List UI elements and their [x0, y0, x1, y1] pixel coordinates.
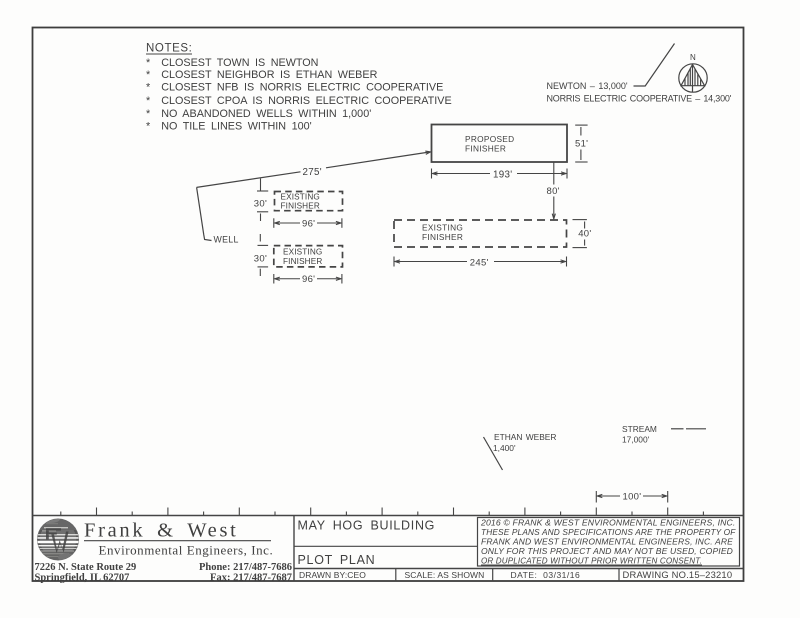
svg-text:FINISHER: FINISHER [281, 202, 320, 211]
svg-text:* CLOSEST NEIGHBOR IS ETHAN W: * CLOSEST NEIGHBOR IS ETHAN WEBER [146, 69, 378, 81]
svg-text:PLOT PLAN: PLOT PLAN [298, 553, 376, 567]
svg-text:SCALE: AS SHOWN: SCALE: AS SHOWN [405, 570, 485, 580]
svg-text:MAY HOG BUILDING: MAY HOG BUILDING [298, 519, 436, 533]
svg-text:THESE PLANS AND SPECIFICATIONS: THESE PLANS AND SPECIFICATIONS ARE THE P… [481, 528, 736, 537]
svg-text:100': 100' [623, 491, 642, 502]
svg-text:Environmental Engineers, Inc.: Environmental Engineers, Inc. [99, 542, 274, 557]
svg-text:275': 275' [303, 167, 322, 178]
svg-text:Springfield, IL 62707: Springfield, IL 62707 [35, 573, 130, 584]
svg-text:FINISHER: FINISHER [283, 257, 322, 266]
svg-text:NOTES:: NOTES: [146, 43, 192, 55]
svg-text:* CLOSEST CPOA IS NORRIS ELEC: * CLOSEST CPOA IS NORRIS ELECTRIC COOPER… [146, 95, 452, 107]
svg-text:STREAM: STREAM [622, 424, 657, 434]
svg-text:FRANK AND WEST ENVIRONMENTAL E: FRANK AND WEST ENVIRONMENTAL ENGINEERS, … [481, 538, 733, 547]
svg-text:NORRIS ELECTRIC COOPERATIVE –: NORRIS ELECTRIC COOPERATIVE – 14,300' [547, 94, 732, 104]
svg-text:* CLOSEST TOWN IS NEWTON: * CLOSEST TOWN IS NEWTON [146, 57, 318, 69]
svg-text:* NO TILE LINES WITHIN 100': * NO TILE LINES WITHIN 100' [146, 121, 312, 133]
svg-text:2016 © FRANK & WEST ENVIRONMEN: 2016 © FRANK & WEST ENVIRONMENTAL ENGINE… [480, 519, 736, 528]
svg-text:80': 80' [547, 186, 560, 197]
svg-text:96': 96' [302, 218, 315, 229]
svg-text:WELL: WELL [214, 235, 239, 245]
svg-text:51': 51' [575, 139, 588, 150]
svg-text:17,000': 17,000' [622, 435, 650, 445]
svg-text:Fax: 217/487-7687: Fax: 217/487-7687 [210, 573, 292, 584]
svg-text:FINISHER: FINISHER [422, 232, 463, 242]
svg-text:40': 40' [578, 229, 591, 240]
svg-text:DATE: 03/31/16: DATE: 03/31/16 [511, 570, 581, 580]
svg-text:ONLY FOR THIS PROJECT AND MAY: ONLY FOR THIS PROJECT AND MAY NOT BE USE… [481, 547, 733, 556]
svg-text:* CLOSEST NFB IS NORRIS ELECT: * CLOSEST NFB IS NORRIS ELECTRIC COOPERA… [146, 82, 443, 94]
svg-text:Frank & West: Frank & West [84, 520, 239, 542]
svg-text:OR DUPLICATED WITHOUT PRIOR WR: OR DUPLICATED WITHOUT PRIOR WRITTEN CONS… [481, 557, 702, 566]
svg-text:193': 193' [493, 170, 512, 181]
svg-text:* NO ABANDONED WELLS WITHIN 1: * NO ABANDONED WELLS WITHIN 1,000' [146, 108, 371, 120]
svg-text:30': 30' [254, 253, 267, 264]
svg-text:FINISHER: FINISHER [465, 144, 506, 154]
svg-text:96': 96' [302, 274, 315, 285]
svg-text:N: N [690, 53, 696, 62]
svg-text:1,400': 1,400' [493, 443, 516, 453]
svg-text:PROPOSED: PROPOSED [465, 134, 514, 144]
svg-text:ETHAN WEBER: ETHAN WEBER [494, 432, 556, 442]
svg-text:Phone: 217/487-7686: Phone: 217/487-7686 [199, 562, 292, 573]
svg-text:30': 30' [254, 198, 267, 209]
svg-text:DRAWING NO.15–23210: DRAWING NO.15–23210 [623, 569, 733, 580]
svg-text:DRAWN BY:CEO: DRAWN BY:CEO [299, 570, 366, 580]
svg-text:EXISTING: EXISTING [281, 193, 320, 202]
svg-text:245': 245' [470, 257, 489, 268]
svg-text:EXISTING: EXISTING [283, 248, 322, 257]
svg-text:EXISTING: EXISTING [422, 223, 463, 233]
svg-text:7226 N. State Route 29: 7226 N. State Route 29 [35, 562, 137, 573]
svg-text:NEWTON – 13,000': NEWTON – 13,000' [547, 81, 628, 91]
